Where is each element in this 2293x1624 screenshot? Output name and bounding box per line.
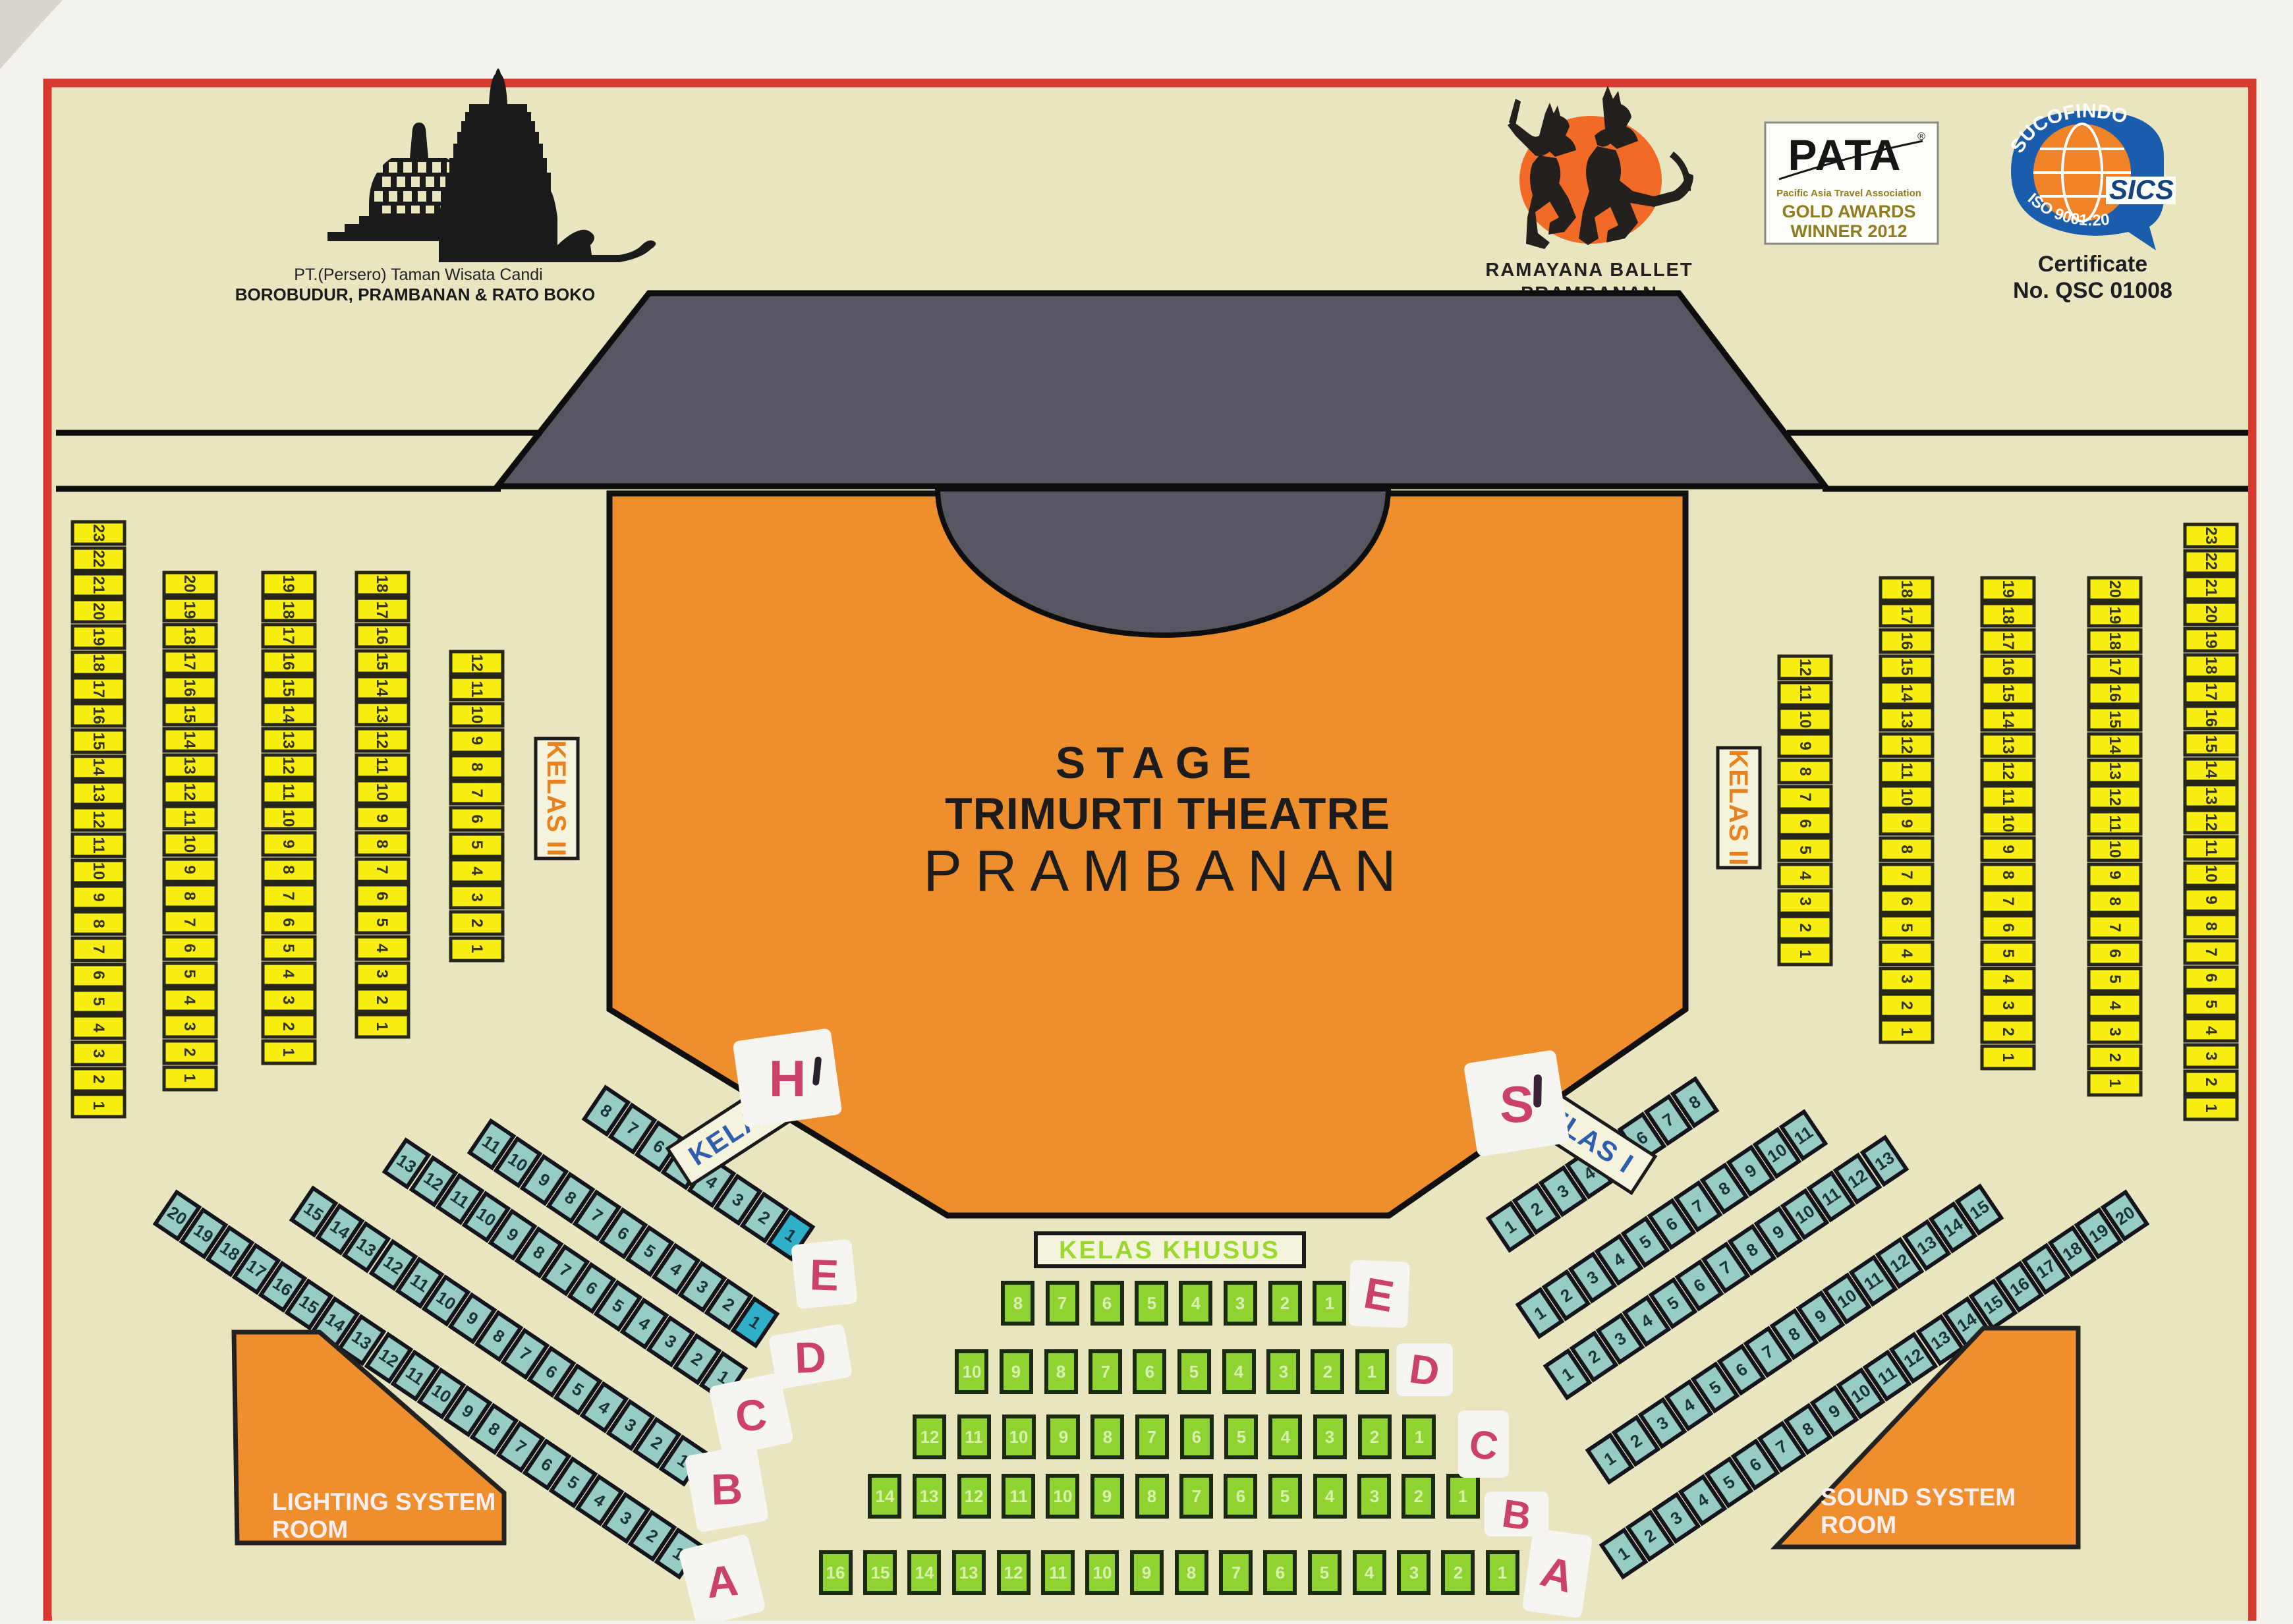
svg-text:7: 7 bbox=[1192, 1486, 1201, 1506]
svg-text:5: 5 bbox=[1237, 1427, 1246, 1447]
svg-text:1: 1 bbox=[1458, 1486, 1467, 1506]
svg-text:LIGHTING SYSTEM: LIGHTING SYSTEM bbox=[272, 1488, 495, 1515]
svg-text:14: 14 bbox=[1898, 685, 1915, 702]
svg-text:3: 3 bbox=[2106, 1027, 2124, 1036]
svg-text:1: 1 bbox=[279, 1048, 297, 1056]
svg-text:8: 8 bbox=[1999, 870, 2017, 879]
svg-text:ROOM: ROOM bbox=[1821, 1511, 1896, 1538]
svg-text:5: 5 bbox=[1898, 923, 1915, 932]
svg-text:11: 11 bbox=[279, 783, 297, 800]
svg-text:2: 2 bbox=[1999, 1027, 2017, 1036]
svg-text:1: 1 bbox=[1415, 1427, 1424, 1447]
svg-text:2: 2 bbox=[1414, 1486, 1423, 1506]
svg-text:13: 13 bbox=[1898, 711, 1915, 729]
svg-text:19: 19 bbox=[279, 575, 297, 593]
svg-text:WINNER 2012: WINNER 2012 bbox=[1790, 221, 1907, 241]
svg-text:6: 6 bbox=[1236, 1486, 1245, 1506]
svg-text:18: 18 bbox=[2202, 657, 2220, 675]
svg-text:E: E bbox=[809, 1250, 840, 1299]
svg-text:7: 7 bbox=[373, 865, 391, 874]
svg-text:15: 15 bbox=[279, 679, 297, 697]
svg-text:8: 8 bbox=[1796, 767, 1814, 775]
svg-text:1: 1 bbox=[373, 1022, 391, 1030]
svg-text:3: 3 bbox=[2202, 1051, 2220, 1060]
svg-text:2: 2 bbox=[279, 1022, 297, 1030]
svg-text:15: 15 bbox=[871, 1563, 890, 1582]
svg-text:4: 4 bbox=[2202, 1026, 2220, 1035]
svg-text:7: 7 bbox=[181, 918, 198, 926]
svg-text:10: 10 bbox=[2202, 865, 2220, 883]
svg-text:2: 2 bbox=[2202, 1077, 2220, 1086]
svg-text:3: 3 bbox=[1370, 1486, 1379, 1506]
svg-text:9: 9 bbox=[279, 839, 297, 848]
svg-text:9: 9 bbox=[90, 893, 107, 901]
svg-text:9: 9 bbox=[1796, 741, 1814, 750]
svg-text:4: 4 bbox=[1365, 1563, 1374, 1582]
svg-text:1: 1 bbox=[1796, 949, 1814, 958]
svg-text:6: 6 bbox=[1276, 1563, 1285, 1582]
svg-text:6: 6 bbox=[90, 970, 107, 979]
svg-text:11: 11 bbox=[373, 757, 391, 773]
svg-text:4: 4 bbox=[1999, 974, 2017, 984]
svg-text:7: 7 bbox=[2106, 923, 2124, 932]
svg-text:23: 23 bbox=[90, 524, 107, 542]
svg-text:6: 6 bbox=[2106, 949, 2124, 957]
svg-text:5: 5 bbox=[1796, 845, 1814, 854]
svg-text:11: 11 bbox=[1049, 1563, 1067, 1582]
svg-text:STAGE: STAGE bbox=[1056, 738, 1262, 788]
svg-text:15: 15 bbox=[373, 653, 391, 671]
svg-text:16: 16 bbox=[826, 1563, 845, 1582]
svg-text:RAMAYANA BALLET: RAMAYANA BALLET bbox=[1485, 260, 1693, 281]
svg-text:17: 17 bbox=[1898, 607, 1915, 625]
svg-text:14: 14 bbox=[2106, 737, 2124, 754]
svg-text:3: 3 bbox=[1796, 897, 1814, 905]
svg-text:9: 9 bbox=[1142, 1563, 1151, 1582]
svg-text:2: 2 bbox=[90, 1075, 107, 1083]
svg-text:6: 6 bbox=[1898, 897, 1915, 905]
svg-text:GOLD AWARDS: GOLD AWARDS bbox=[1782, 202, 1915, 221]
svg-text:14: 14 bbox=[373, 679, 391, 697]
svg-text:13: 13 bbox=[90, 785, 107, 802]
svg-text:9: 9 bbox=[1059, 1427, 1068, 1447]
svg-text:4: 4 bbox=[1898, 949, 1915, 958]
svg-text:7: 7 bbox=[1058, 1293, 1067, 1313]
svg-text:3: 3 bbox=[1235, 1293, 1245, 1313]
svg-text:14: 14 bbox=[181, 731, 198, 749]
svg-text:ROOM: ROOM bbox=[272, 1516, 348, 1543]
svg-text:2: 2 bbox=[2106, 1053, 2124, 1061]
svg-text:10: 10 bbox=[468, 706, 486, 724]
svg-text:1: 1 bbox=[1367, 1362, 1376, 1382]
svg-text:8: 8 bbox=[181, 891, 198, 900]
svg-text:3: 3 bbox=[1409, 1563, 1419, 1582]
svg-text:4: 4 bbox=[468, 866, 486, 876]
svg-text:21: 21 bbox=[90, 576, 107, 594]
svg-text:5: 5 bbox=[2106, 974, 2124, 983]
svg-text:6: 6 bbox=[1796, 819, 1814, 827]
svg-text:9: 9 bbox=[181, 865, 198, 874]
svg-text:3: 3 bbox=[1898, 974, 1915, 983]
svg-text:13: 13 bbox=[181, 757, 198, 775]
svg-text:2: 2 bbox=[1323, 1362, 1332, 1382]
svg-text:1: 1 bbox=[1898, 1027, 1915, 1036]
svg-text:7: 7 bbox=[1999, 897, 2017, 905]
svg-text:22: 22 bbox=[90, 550, 107, 568]
svg-text:7: 7 bbox=[1898, 870, 1915, 879]
svg-text:6: 6 bbox=[2202, 973, 2220, 982]
svg-text:16: 16 bbox=[373, 627, 391, 645]
svg-text:Pacific Asia Travel Associatio: Pacific Asia Travel Association bbox=[1776, 188, 1921, 199]
svg-text:16: 16 bbox=[2202, 710, 2220, 727]
svg-text:10: 10 bbox=[279, 810, 297, 827]
svg-text:13: 13 bbox=[279, 731, 297, 749]
svg-text:16: 16 bbox=[90, 707, 107, 725]
svg-text:9: 9 bbox=[373, 814, 391, 822]
svg-text:B: B bbox=[710, 1464, 743, 1514]
svg-text:KELAS II: KELAS II bbox=[1724, 750, 1753, 866]
svg-text:11: 11 bbox=[1796, 685, 1814, 701]
svg-text:3: 3 bbox=[1279, 1362, 1288, 1382]
svg-text:18: 18 bbox=[1898, 580, 1915, 598]
svg-text:11: 11 bbox=[90, 837, 107, 853]
svg-text:19: 19 bbox=[181, 602, 198, 619]
svg-text:8: 8 bbox=[279, 865, 297, 874]
svg-text:16: 16 bbox=[2106, 685, 2124, 702]
svg-text:17: 17 bbox=[279, 627, 297, 645]
svg-text:7: 7 bbox=[2202, 947, 2220, 956]
svg-text:2: 2 bbox=[1280, 1293, 1289, 1313]
svg-text:7: 7 bbox=[90, 945, 107, 953]
svg-text:5: 5 bbox=[1320, 1563, 1329, 1582]
svg-text:4: 4 bbox=[1325, 1486, 1335, 1506]
svg-text:TRIMURTI THEATRE: TRIMURTI THEATRE bbox=[945, 789, 1390, 839]
svg-text:5: 5 bbox=[90, 997, 107, 1005]
svg-text:11: 11 bbox=[1898, 762, 1915, 779]
svg-text:10: 10 bbox=[90, 862, 107, 880]
svg-text:23: 23 bbox=[2202, 527, 2220, 545]
svg-text:14: 14 bbox=[90, 758, 107, 776]
svg-text:2: 2 bbox=[1454, 1563, 1463, 1582]
svg-text:14: 14 bbox=[1999, 711, 2017, 729]
svg-text:16: 16 bbox=[181, 679, 198, 697]
svg-text:6: 6 bbox=[1102, 1293, 1112, 1313]
svg-text:C: C bbox=[1467, 1421, 1501, 1469]
svg-text:7: 7 bbox=[279, 891, 297, 900]
svg-text:4: 4 bbox=[373, 943, 391, 953]
svg-text:15: 15 bbox=[2202, 735, 2220, 753]
svg-text:8: 8 bbox=[373, 839, 391, 848]
svg-text:11: 11 bbox=[2106, 815, 2124, 831]
svg-text:12: 12 bbox=[1004, 1563, 1023, 1582]
svg-text:20: 20 bbox=[2106, 580, 2124, 598]
svg-text:1: 1 bbox=[1325, 1293, 1334, 1313]
svg-text:12: 12 bbox=[2202, 814, 2220, 831]
svg-text:6: 6 bbox=[1999, 923, 2017, 932]
svg-text:No. QSC 01008: No. QSC 01008 bbox=[2013, 278, 2172, 303]
svg-text:H: H bbox=[769, 1050, 806, 1107]
svg-text:19: 19 bbox=[90, 629, 107, 646]
svg-text:5: 5 bbox=[181, 969, 198, 978]
svg-text:17: 17 bbox=[2106, 658, 2124, 676]
svg-text:2: 2 bbox=[1898, 1001, 1915, 1009]
svg-text:B: B bbox=[1500, 1491, 1534, 1538]
svg-text:4: 4 bbox=[1234, 1362, 1244, 1382]
svg-text:7: 7 bbox=[1796, 793, 1814, 801]
svg-text:9: 9 bbox=[2106, 870, 2124, 879]
svg-text:1: 1 bbox=[181, 1073, 198, 1082]
svg-text:10: 10 bbox=[963, 1362, 982, 1382]
svg-text:5: 5 bbox=[1147, 1293, 1156, 1313]
svg-text:8: 8 bbox=[90, 919, 107, 928]
svg-text:8: 8 bbox=[1147, 1486, 1156, 1506]
svg-text:15: 15 bbox=[1999, 685, 2017, 702]
svg-text:19: 19 bbox=[2106, 607, 2124, 625]
svg-text:1: 1 bbox=[1999, 1053, 2017, 1061]
svg-text:10: 10 bbox=[2106, 841, 2124, 858]
svg-text:1: 1 bbox=[2202, 1104, 2220, 1112]
svg-text:15: 15 bbox=[181, 706, 198, 723]
svg-text:9: 9 bbox=[1011, 1362, 1021, 1382]
svg-text:6: 6 bbox=[1192, 1427, 1201, 1447]
svg-text:SOUND SYSTEM: SOUND SYSTEM bbox=[1821, 1484, 2016, 1511]
svg-text:8: 8 bbox=[2202, 922, 2220, 930]
svg-text:4: 4 bbox=[90, 1023, 107, 1032]
svg-text:A: A bbox=[704, 1555, 741, 1608]
svg-text:21: 21 bbox=[2202, 579, 2220, 597]
svg-text:8: 8 bbox=[1056, 1362, 1065, 1382]
svg-text:4: 4 bbox=[2106, 1001, 2124, 1010]
svg-text:1: 1 bbox=[90, 1101, 107, 1109]
svg-text:6: 6 bbox=[373, 891, 391, 900]
svg-text:3: 3 bbox=[1325, 1427, 1334, 1447]
svg-text:7: 7 bbox=[1147, 1427, 1156, 1447]
svg-text:10: 10 bbox=[373, 783, 391, 801]
svg-text:17: 17 bbox=[90, 681, 107, 698]
svg-text:8: 8 bbox=[1013, 1293, 1023, 1313]
svg-text:10: 10 bbox=[1796, 711, 1814, 729]
svg-text:12: 12 bbox=[468, 654, 486, 672]
svg-text:13: 13 bbox=[920, 1486, 939, 1506]
svg-text:6: 6 bbox=[279, 918, 297, 926]
svg-text:15: 15 bbox=[2106, 711, 2124, 729]
svg-text:12: 12 bbox=[181, 783, 198, 801]
svg-text:12: 12 bbox=[2106, 789, 2124, 806]
svg-text:9: 9 bbox=[468, 736, 486, 744]
svg-text:PT.(Persero) Taman Wisata Cand: PT.(Persero) Taman Wisata Candi bbox=[294, 266, 542, 284]
svg-text:8: 8 bbox=[1103, 1427, 1112, 1447]
svg-text:12: 12 bbox=[279, 757, 297, 775]
svg-text:7: 7 bbox=[1101, 1362, 1110, 1382]
svg-text:18: 18 bbox=[373, 575, 391, 593]
svg-text:6: 6 bbox=[468, 814, 486, 823]
svg-text:D: D bbox=[794, 1332, 827, 1382]
svg-text:18: 18 bbox=[90, 654, 107, 672]
svg-text:4: 4 bbox=[1191, 1293, 1201, 1313]
svg-text:C: C bbox=[734, 1389, 769, 1440]
svg-text:8: 8 bbox=[2106, 897, 2124, 905]
svg-text:9: 9 bbox=[1999, 845, 2017, 853]
svg-text:4: 4 bbox=[181, 995, 198, 1005]
svg-text:17: 17 bbox=[2202, 683, 2220, 701]
svg-text:18: 18 bbox=[2106, 632, 2124, 650]
svg-text:22: 22 bbox=[2202, 553, 2220, 571]
svg-text:13: 13 bbox=[2106, 762, 2124, 780]
svg-text:5: 5 bbox=[468, 840, 486, 849]
svg-text:18: 18 bbox=[1999, 607, 2017, 625]
svg-text:10: 10 bbox=[1898, 789, 1915, 806]
svg-text:17: 17 bbox=[181, 653, 198, 671]
svg-text:SICS: SICS bbox=[2109, 174, 2174, 205]
svg-text:2: 2 bbox=[1370, 1427, 1379, 1447]
svg-text:11: 11 bbox=[2202, 839, 2220, 856]
svg-text:20: 20 bbox=[2202, 605, 2220, 623]
svg-text:12: 12 bbox=[1796, 659, 1814, 677]
svg-text:10: 10 bbox=[1093, 1563, 1112, 1582]
svg-text:9: 9 bbox=[1898, 819, 1915, 827]
svg-text:13: 13 bbox=[959, 1563, 978, 1582]
svg-text:5: 5 bbox=[2202, 999, 2220, 1008]
svg-text:11: 11 bbox=[1009, 1486, 1028, 1506]
svg-text:5: 5 bbox=[279, 943, 297, 952]
svg-text:PRAMBANAN: PRAMBANAN bbox=[923, 838, 1409, 903]
svg-text:4: 4 bbox=[1796, 871, 1814, 880]
svg-text:12: 12 bbox=[373, 731, 391, 749]
svg-text:3: 3 bbox=[373, 969, 391, 978]
svg-text:15: 15 bbox=[1898, 658, 1915, 676]
svg-text:S: S bbox=[1499, 1075, 1535, 1134]
svg-text:KELAS II: KELAS II bbox=[542, 741, 571, 857]
svg-text:20: 20 bbox=[90, 603, 107, 621]
svg-text:10: 10 bbox=[1009, 1427, 1029, 1447]
svg-text:7: 7 bbox=[1231, 1563, 1241, 1582]
svg-text:14: 14 bbox=[279, 706, 297, 723]
svg-text:13: 13 bbox=[373, 706, 391, 723]
svg-text:12: 12 bbox=[965, 1486, 984, 1506]
svg-text:2: 2 bbox=[373, 995, 391, 1004]
svg-text:BOROBUDUR, PRAMBANAN & RATO BO: BOROBUDUR, PRAMBANAN & RATO BOKO bbox=[235, 285, 595, 304]
svg-text:1: 1 bbox=[1498, 1563, 1507, 1582]
svg-text:10: 10 bbox=[1054, 1486, 1073, 1506]
svg-text:3: 3 bbox=[1999, 1001, 2017, 1009]
svg-text:8: 8 bbox=[1187, 1563, 1196, 1582]
svg-text:11: 11 bbox=[1999, 789, 2017, 805]
svg-text:3: 3 bbox=[279, 995, 297, 1004]
svg-text:15: 15 bbox=[90, 733, 107, 750]
svg-text:18: 18 bbox=[279, 602, 297, 619]
svg-text:16: 16 bbox=[1999, 658, 2017, 676]
svg-text:3: 3 bbox=[90, 1049, 107, 1057]
svg-text:8: 8 bbox=[468, 762, 486, 771]
svg-text:16: 16 bbox=[279, 653, 297, 671]
svg-text:2: 2 bbox=[468, 918, 486, 927]
svg-text:11: 11 bbox=[468, 681, 486, 697]
svg-text:2: 2 bbox=[1796, 923, 1814, 932]
svg-text:18: 18 bbox=[181, 627, 198, 645]
svg-text:20: 20 bbox=[181, 575, 198, 593]
svg-text:5: 5 bbox=[1280, 1486, 1289, 1506]
svg-text:Certificate: Certificate bbox=[2038, 252, 2147, 277]
svg-text:13: 13 bbox=[1999, 737, 2017, 754]
svg-text:10: 10 bbox=[1999, 815, 2017, 833]
svg-text:13: 13 bbox=[2202, 787, 2220, 805]
svg-text:14: 14 bbox=[2202, 761, 2220, 779]
svg-text:KELAS KHUSUS: KELAS KHUSUS bbox=[1059, 1237, 1280, 1264]
svg-text:16: 16 bbox=[1898, 632, 1915, 650]
svg-text:19: 19 bbox=[1999, 580, 2017, 598]
svg-text:1: 1 bbox=[468, 944, 486, 953]
svg-text:5: 5 bbox=[1999, 949, 2017, 957]
svg-text:8: 8 bbox=[1898, 845, 1915, 853]
svg-text:4: 4 bbox=[279, 969, 297, 978]
svg-text:1: 1 bbox=[2106, 1078, 2124, 1087]
svg-text:11: 11 bbox=[965, 1427, 983, 1447]
svg-text:12: 12 bbox=[920, 1427, 940, 1447]
svg-text:17: 17 bbox=[373, 602, 391, 619]
svg-text:3: 3 bbox=[181, 1022, 198, 1030]
svg-text:12: 12 bbox=[1999, 762, 2017, 780]
svg-text:7: 7 bbox=[468, 789, 486, 797]
svg-text:6: 6 bbox=[181, 943, 198, 952]
svg-text:12: 12 bbox=[90, 811, 107, 829]
svg-text:D: D bbox=[1407, 1346, 1442, 1395]
svg-text:6: 6 bbox=[1145, 1362, 1154, 1382]
svg-text:5: 5 bbox=[373, 918, 391, 926]
svg-text:14: 14 bbox=[915, 1563, 934, 1582]
svg-text:19: 19 bbox=[2202, 631, 2220, 649]
svg-text:11: 11 bbox=[181, 810, 198, 826]
svg-text:3: 3 bbox=[468, 893, 486, 901]
svg-text:9: 9 bbox=[2202, 895, 2220, 904]
svg-text:12: 12 bbox=[1898, 737, 1915, 754]
svg-text:4: 4 bbox=[1281, 1427, 1291, 1447]
svg-text:9: 9 bbox=[1102, 1486, 1112, 1506]
svg-text:14: 14 bbox=[876, 1486, 895, 1506]
svg-text:10: 10 bbox=[181, 835, 198, 853]
svg-text:5: 5 bbox=[1189, 1362, 1199, 1382]
svg-text:17: 17 bbox=[1999, 632, 2017, 650]
svg-text:2: 2 bbox=[181, 1048, 198, 1056]
